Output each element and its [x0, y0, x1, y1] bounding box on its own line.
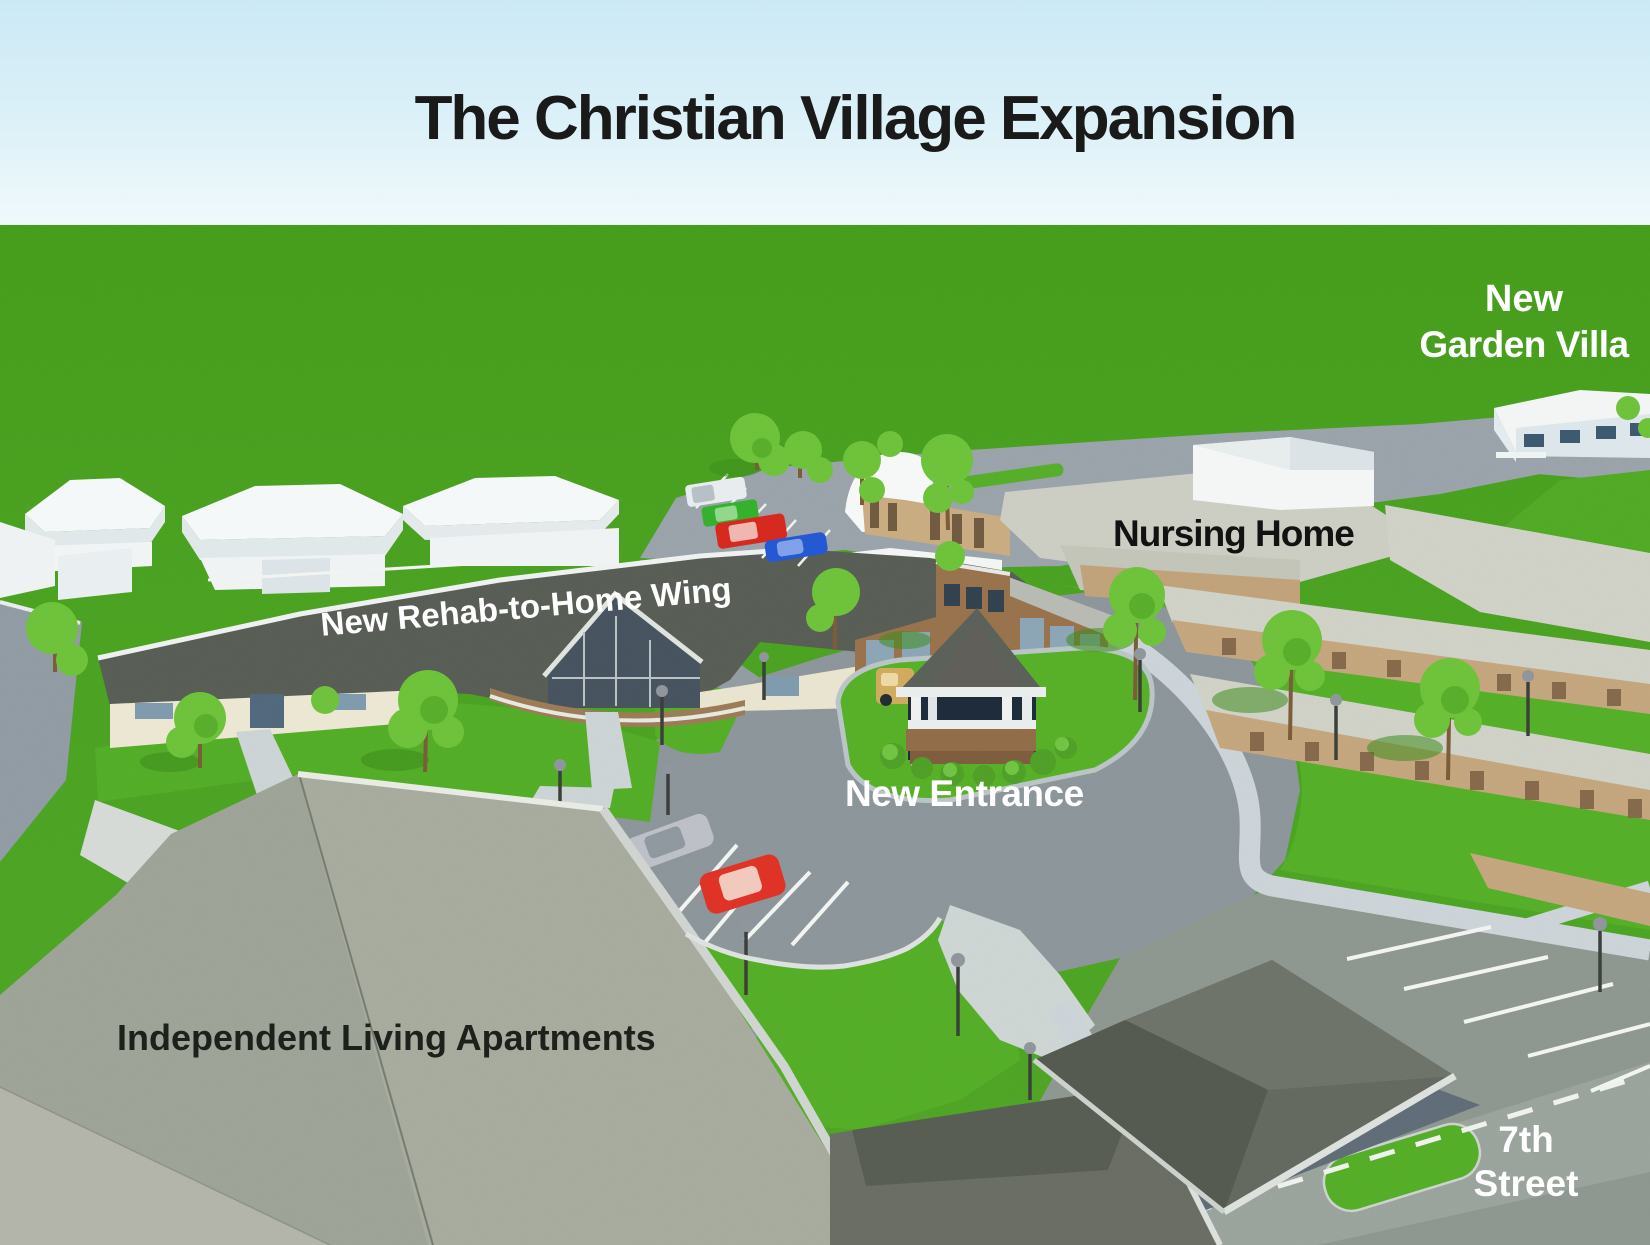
svg-text:Nursing Home: Nursing Home	[1113, 513, 1354, 554]
svg-text:The Christian Village Expansio: The Christian Village Expansion	[415, 84, 1296, 153]
svg-text:7th: 7th	[1498, 1119, 1554, 1160]
svg-text:Independent Living Apartments: Independent Living Apartments	[117, 1017, 656, 1058]
svg-text:Garden Villa: Garden Villa	[1419, 324, 1629, 365]
svg-text:New Entrance: New Entrance	[845, 773, 1084, 814]
svg-text:New: New	[1485, 278, 1564, 320]
svg-text:Street: Street	[1474, 1163, 1579, 1204]
